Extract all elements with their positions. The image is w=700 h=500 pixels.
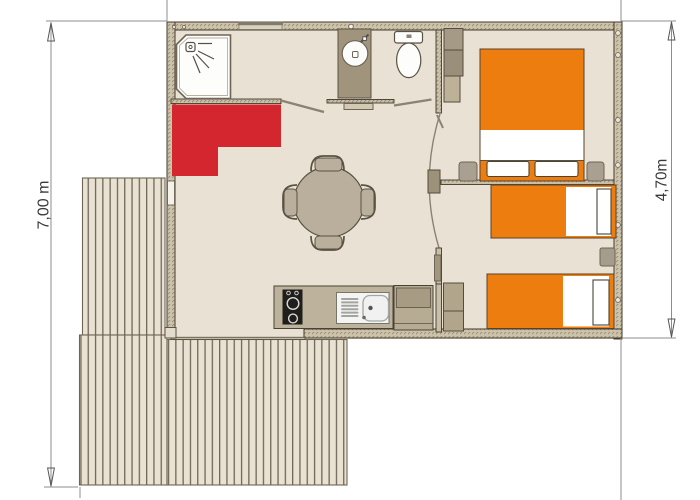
svg-text:7,00 m: 7,00 m: [36, 181, 53, 230]
svg-text:4,70m: 4,70m: [654, 159, 671, 202]
